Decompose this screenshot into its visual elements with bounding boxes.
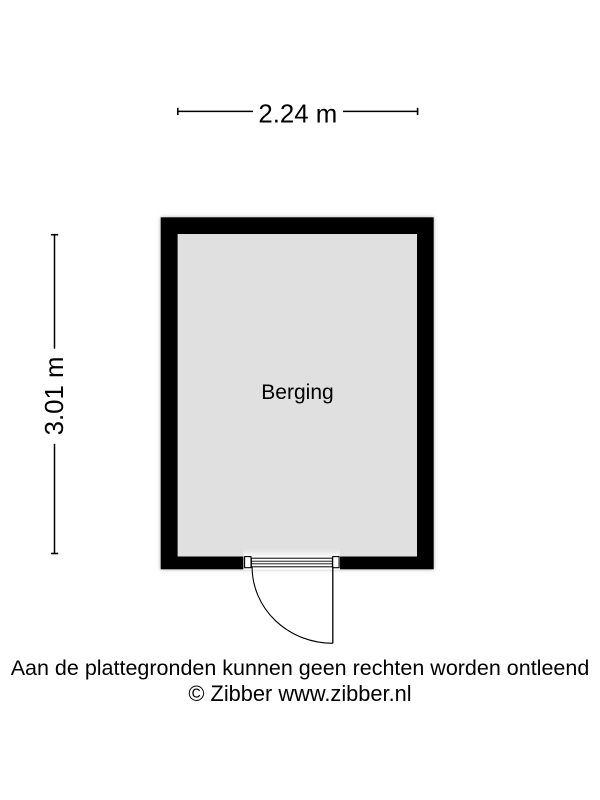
svg-text:Aan de plattegronden kunnen ge: Aan de plattegronden kunnen geen rechten… (11, 656, 590, 680)
svg-text:2.24 m: 2.24 m (258, 101, 337, 129)
svg-text:© Zibber www.zibber.nl: © Zibber www.zibber.nl (188, 681, 411, 706)
svg-text:3.01 m: 3.01 m (41, 356, 69, 435)
svg-text:Berging: Berging (261, 381, 333, 404)
